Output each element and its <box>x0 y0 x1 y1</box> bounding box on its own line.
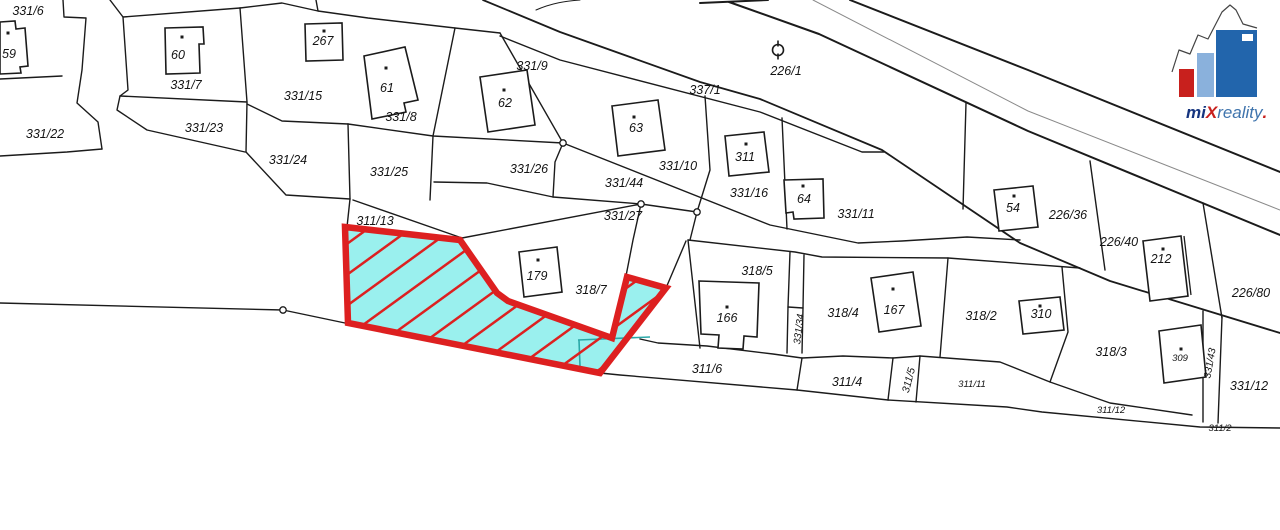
parcel-label: 331/10 <box>659 159 697 173</box>
map-canvas: 5960267616263311645421231016616730917933… <box>0 0 1280 530</box>
parcel-label: 318/2 <box>965 309 996 323</box>
building-dot <box>503 89 506 92</box>
parcel-label: 331/12 <box>1230 379 1268 393</box>
parcel-label: 331/8 <box>385 110 416 124</box>
parcel-label: 331/15 <box>284 89 322 103</box>
node-marker <box>638 201 644 207</box>
parcel-label: 226/80 <box>1231 286 1270 300</box>
building-label: 61 <box>380 81 394 95</box>
building-label: 62 <box>498 96 512 110</box>
building-dot <box>745 143 748 146</box>
parcel-label: 331/7 <box>170 78 202 92</box>
logo-building-mid-icon <box>1197 53 1214 97</box>
parcel-label: 318/3 <box>1095 345 1126 359</box>
building-dot <box>181 36 184 39</box>
building-label: 63 <box>629 121 643 135</box>
node-marker <box>560 140 566 146</box>
parcel-label: 331/22 <box>26 127 64 141</box>
parcel-label: 226/40 <box>1099 235 1138 249</box>
parcel-label: 331/23 <box>185 121 223 135</box>
parcel-label: 331/44 <box>605 176 643 190</box>
parcel-label: 331/11 <box>837 207 874 221</box>
building-dot <box>892 288 895 291</box>
logo-text-part: reality <box>1217 103 1264 122</box>
logo-text-part: . <box>1263 103 1268 122</box>
parcel-label: 331/16 <box>730 186 768 200</box>
building-dot <box>537 259 540 262</box>
building-dot <box>1180 348 1183 351</box>
logo-text-part: mi <box>1186 103 1207 122</box>
parcel-label: 311/13 <box>356 214 393 228</box>
building-label: 64 <box>797 192 811 206</box>
boundary-line <box>788 307 803 308</box>
building-label: 179 <box>527 269 548 283</box>
building-dot <box>802 185 805 188</box>
parcel-label: 331/6 <box>12 4 43 18</box>
node-marker <box>280 307 286 313</box>
parcel-label: 331/27 <box>604 209 643 223</box>
building-label: 59 <box>2 47 16 61</box>
building-dot <box>7 32 10 35</box>
building-label: 167 <box>884 303 906 317</box>
building-label: 309 <box>1172 353 1189 364</box>
building-label: 60 <box>171 48 185 62</box>
logo-window <box>1242 34 1253 41</box>
parcel-label: 318/5 <box>741 264 772 278</box>
parcel-label: 331/25 <box>370 165 408 179</box>
building-label: 166 <box>717 311 738 325</box>
parcel-label: 311/6 <box>692 362 722 376</box>
building-label: 212 <box>1150 252 1172 266</box>
building <box>1143 236 1188 301</box>
building-dot <box>1013 195 1016 198</box>
parcel-label: 311/12 <box>1097 405 1126 416</box>
node-marker <box>694 209 700 215</box>
parcel-label: 226/1 <box>769 64 801 78</box>
parcel-label: 331/24 <box>269 153 307 167</box>
logo-building-red-icon <box>1179 69 1194 97</box>
cadastral-map: 5960267616263311645421231016616730917933… <box>0 0 1280 530</box>
building-label: 311 <box>735 150 755 164</box>
parcel-label: 318/7 <box>575 283 607 297</box>
parcel-label: 311/4 <box>832 375 862 389</box>
parcel-label: 331/26 <box>510 162 548 176</box>
building-label: 267 <box>312 34 335 48</box>
parcel-label: 331/9 <box>516 59 547 73</box>
building-label: 310 <box>1031 307 1052 321</box>
logo-text: miXreality. <box>1186 103 1267 122</box>
building-label: 54 <box>1006 201 1020 215</box>
parcel-label: 311/2 <box>1208 423 1232 434</box>
building-dot <box>633 116 636 119</box>
parcel-label: 337/1 <box>689 83 720 97</box>
building-dot <box>726 306 729 309</box>
parcel-label: 318/4 <box>827 306 858 320</box>
parcel-label: 311/11 <box>958 379 986 390</box>
building <box>871 272 921 332</box>
building-dot <box>323 30 326 33</box>
building-dot <box>385 67 388 70</box>
parcel-label: 226/36 <box>1048 208 1087 222</box>
building-dot <box>1162 248 1165 251</box>
